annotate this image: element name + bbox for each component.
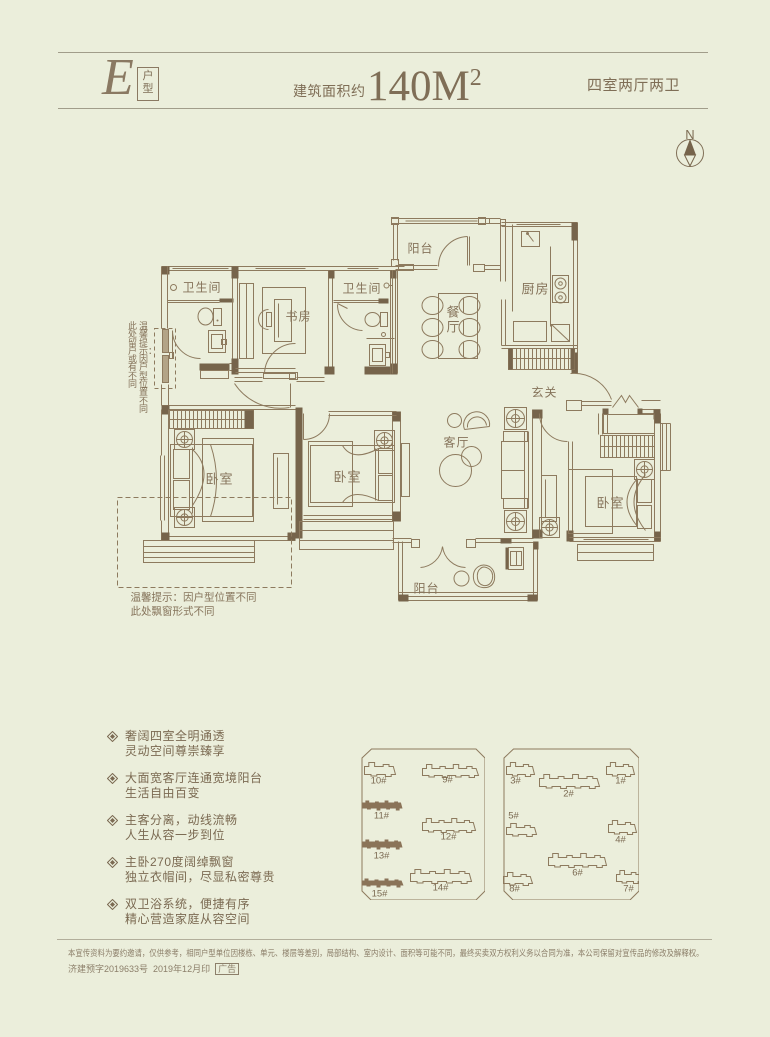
svg-text:卧室: 卧室	[597, 496, 625, 511]
svg-text:阳台: 阳台	[408, 241, 434, 256]
svg-text:客厅: 客厅	[444, 435, 470, 450]
svg-text:9#: 9#	[442, 775, 453, 786]
svg-text:厨房: 厨房	[522, 282, 550, 297]
svg-text:5#: 5#	[508, 811, 519, 822]
svg-text:餐: 餐	[447, 305, 460, 320]
svg-text:11#: 11#	[374, 811, 390, 822]
svg-text:14#: 14#	[433, 883, 450, 894]
svg-text:8#: 8#	[509, 884, 520, 895]
svg-text:阳台: 阳台	[414, 581, 440, 596]
svg-text:厅: 厅	[447, 320, 460, 335]
svg-text:2#: 2#	[563, 789, 574, 800]
svg-text:3#: 3#	[510, 776, 521, 787]
svg-text:卫生间: 卫生间	[183, 281, 222, 295]
svg-text:15#: 15#	[372, 889, 389, 900]
svg-text:6#: 6#	[572, 868, 583, 879]
svg-text:书房: 书房	[286, 309, 312, 324]
svg-text:10#: 10#	[371, 776, 388, 787]
svg-text:卧室: 卧室	[334, 470, 362, 485]
svg-text:13#: 13#	[374, 851, 391, 862]
svg-text:卫生间: 卫生间	[343, 282, 382, 296]
svg-text:卧室: 卧室	[206, 472, 234, 487]
svg-text:玄关: 玄关	[532, 385, 558, 400]
svg-text:4#: 4#	[615, 835, 626, 846]
svg-text:温馨提示：因户型位置不同: 温馨提示：因户型位置不同	[131, 591, 257, 604]
svg-text:1#: 1#	[615, 776, 626, 787]
svg-text:此处飘窗形式不同: 此处飘窗形式不同	[131, 605, 215, 618]
svg-text:12#: 12#	[441, 832, 458, 843]
svg-text:7#: 7#	[623, 884, 634, 895]
